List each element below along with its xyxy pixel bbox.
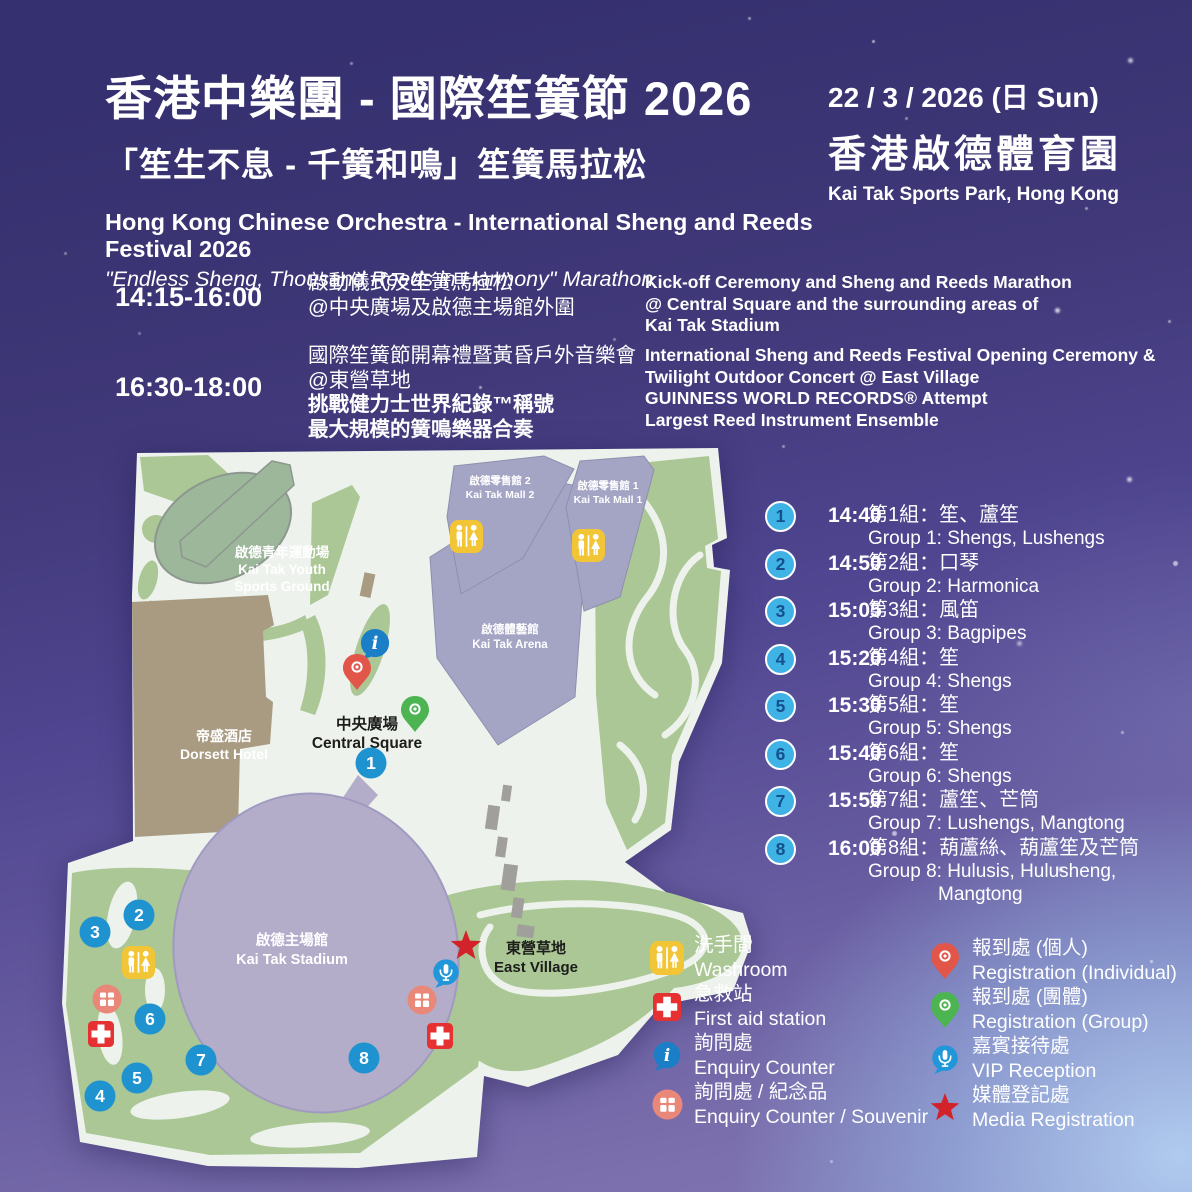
mall2-label-zh: 啟德零售館 2 — [469, 474, 530, 487]
legend-item-media-registration: 媒體登記處Media Registration — [926, 1083, 1192, 1132]
performance-schedule: 1 14:40 第1組：笙、蘆笙 Group 1: Shengs, Lushen… — [765, 501, 1190, 834]
mall1-label-en: Kai Tak Mall 1 — [574, 494, 643, 506]
souvenir-icon — [648, 1089, 686, 1120]
mall2-label-en: Kai Tak Mall 2 — [466, 489, 535, 501]
guinness-record-text: GUINNESS WORLD RECORDS® — [645, 388, 917, 408]
group-number-badge: 7 — [765, 786, 796, 817]
group-en: Group 1: Shengs, Lushengs — [868, 527, 1192, 551]
group-row: 5 15:30 第5組：笙 Group 5: Shengs — [765, 691, 1190, 739]
group-zh: 第6組：笙 — [868, 741, 1192, 765]
schedule-en-2-line1: International Sheng and Reeds Festival O… — [645, 345, 1156, 367]
svg-text:4: 4 — [95, 1086, 105, 1106]
schedule-en-2-line3: GUINNESS WORLD RECORDS® Attempt — [645, 388, 1156, 410]
group-en-line2: Mangtong — [938, 883, 1192, 907]
svg-text:3: 3 — [90, 922, 100, 942]
event-poster: 香港中樂團 - 國際笙簧節 2026 「笙生不息 - 千簧和鳴」笙簧馬拉松 Ho… — [0, 0, 1192, 1192]
mall1-label-zh: 啟德零售館 1 — [577, 479, 638, 492]
legend-item-first-aid: 急救站First aid station — [648, 982, 948, 1031]
group-number-badge: 2 — [765, 549, 796, 580]
legend-item-washroom: 洗手間Washroom — [648, 933, 948, 982]
legend-item-registration-group: 報到處 (團體)Registration (Group) — [926, 985, 1192, 1034]
legend-zh: 詢問處 / 紀念品 — [694, 1080, 928, 1105]
youth-ground-label-en2: Sports Ground — [234, 579, 329, 594]
legend-en: Washroom — [694, 958, 788, 983]
schedule-zh-2-line2: @東營草地 — [308, 369, 636, 394]
schedule-time-1: 14:15-16:00 — [115, 282, 262, 313]
legend-item-enquiry: 詢問處Enquiry Counter — [648, 1031, 948, 1080]
venue-zh: 香港啟德體育園 — [828, 123, 1188, 178]
legend-zh: 報到處 (團體) — [972, 985, 1149, 1010]
group-zh: 第3組：風笛 — [868, 598, 1192, 622]
group-row: 3 15:05 第3組：風笛 Group 3: Bagpipes — [765, 596, 1190, 644]
group-row: 1 14:40 第1組：笙、蘆笙 Group 1: Shengs, Lushen… — [765, 501, 1190, 549]
map-marker-5: 5 — [122, 1063, 153, 1094]
group-number-badge: 5 — [765, 691, 796, 722]
map-marker-3: 3 — [80, 917, 111, 948]
group-number-badge: 4 — [765, 644, 796, 675]
legend-zh: 洗手間 — [694, 933, 788, 958]
map-marker-7: 7 — [186, 1045, 217, 1076]
schedule-zh-1-line2: @中央廣場及啟德主場館外圍 — [308, 296, 575, 321]
dorsett-label-zh: 帝盛酒店 — [196, 728, 252, 744]
title-en: Hong Kong Chinese Orchestra - Internatio… — [105, 209, 845, 263]
group-row: 4 15:20 第4組：笙 Group 4: Shengs — [765, 644, 1190, 692]
schedule-en-2: International Sheng and Reeds Festival O… — [645, 345, 1156, 431]
group-number-badge: 8 — [765, 834, 796, 865]
schedule-en-1: Kick-off Ceremony and Sheng and Reeds Ma… — [645, 272, 1072, 337]
legend-en: Registration (Individual) — [972, 961, 1177, 986]
star-icon — [926, 1092, 964, 1124]
map-marker-2: 2 — [124, 900, 155, 931]
group-en: Group 8: Hulusis, Hulusheng, — [868, 860, 1192, 884]
venue-en: Kai Tak Sports Park, Hong Kong — [828, 184, 1188, 206]
souvenir-icon — [92, 984, 121, 1013]
schedule-en-2-line2: Twilight Outdoor Concert @ East Village — [645, 367, 1156, 389]
legend-en: Enquiry Counter / Souvenir — [694, 1105, 928, 1130]
group-zh: 第1組：笙、蘆笙 — [868, 503, 1192, 527]
schedule-zh-2-line1: 國際笙簧節開幕禮暨黃昏戶外音樂會 — [308, 344, 636, 369]
group-en: Group 6: Shengs — [868, 765, 1192, 789]
pin-red-icon — [926, 942, 964, 980]
legend-zh: 嘉賓接待處 — [972, 1034, 1096, 1059]
group-number-badge: 1 — [765, 501, 796, 532]
group-zh: 第8組：葫蘆絲、葫蘆笙及芒筒 — [868, 836, 1192, 860]
legend-en: First aid station — [694, 1007, 826, 1032]
legend-zh: 報到處 (個人) — [972, 936, 1177, 961]
header-title-block: 香港中樂團 - 國際笙簧節 2026 「笙生不息 - 千簧和鳴」笙簧馬拉松 Ho… — [105, 74, 845, 292]
schedule-en-2-line4: Largest Reed Instrument Ensemble — [645, 410, 1156, 432]
svg-text:5: 5 — [132, 1068, 142, 1088]
youth-ground-label-en1: Kai Tak Youth — [238, 562, 326, 577]
map-marker-4: 4 — [85, 1081, 116, 1112]
map-marker-6: 6 — [135, 1004, 166, 1035]
east-village-label-zh: 東營草地 — [506, 939, 566, 957]
group-en: Group 2: Harmonica — [868, 575, 1192, 599]
group-en: Group 3: Bagpipes — [868, 622, 1192, 646]
group-en: Group 5: Shengs — [868, 717, 1192, 741]
schedule-en-1-line2: @ Central Square and the surrounding are… — [645, 294, 1072, 316]
legend-en: Media Registration — [972, 1108, 1135, 1133]
schedule-time-2: 16:30-18:00 — [115, 372, 262, 403]
legend-zh: 媒體登記處 — [972, 1083, 1135, 1108]
group-zh: 第2組：口琴 — [868, 551, 1192, 575]
legend-registration: 報到處 (個人)Registration (Individual) 報到處 (團… — [926, 936, 1192, 1132]
youth-ground-label: 啟德青年運動場 — [235, 544, 330, 560]
svg-text:7: 7 — [196, 1050, 206, 1070]
washroom-icon — [122, 946, 155, 979]
event-date: 22 / 3 / 2026 (日 Sun) — [828, 76, 1188, 116]
washroom-icon — [450, 520, 483, 553]
legend-item-registration-individual: 報到處 (個人)Registration (Individual) — [926, 936, 1192, 985]
svg-text:2: 2 — [134, 905, 144, 925]
page-title: 香港中樂團 - 國際笙簧節 2026 — [105, 74, 845, 123]
legend-zh: 急救站 — [694, 982, 826, 1007]
legend-en: Enquiry Counter — [694, 1056, 835, 1081]
east-village-label-en: East Village — [494, 959, 578, 976]
dorsett-label-en: Dorsett Hotel — [180, 746, 268, 762]
arena-label-en: Kai Tak Arena — [472, 639, 548, 651]
map-marker-8: 8 — [349, 1043, 380, 1074]
first-aid-icon — [427, 1023, 453, 1049]
stadium-label-en: Kai Tak Stadium — [236, 952, 348, 968]
pin-green-icon — [926, 991, 964, 1029]
schedule-en-1-line1: Kick-off Ceremony and Sheng and Reeds Ma… — [645, 272, 1072, 294]
souvenir-icon — [407, 985, 436, 1014]
group-row: 6 15:40 第6組：笙 Group 6: Shengs — [765, 739, 1190, 787]
washroom-icon — [648, 941, 686, 975]
washroom-icon — [572, 529, 605, 562]
enquiry-icon — [648, 1040, 686, 1072]
mic-icon — [926, 1043, 964, 1075]
map-marker-1: 1 — [356, 748, 387, 779]
arena-label-zh: 啟德體藝館 — [481, 622, 539, 636]
legend-zh: 詢問處 — [694, 1031, 835, 1056]
group-zh: 第5組：笙 — [868, 693, 1192, 717]
group-number-badge: 6 — [765, 739, 796, 770]
svg-text:6: 6 — [145, 1009, 155, 1029]
schedule-zh-1: 啟動儀式及笙簧馬拉松 @中央廣場及啟德主場館外圍 — [308, 271, 575, 320]
first-aid-icon — [88, 1021, 114, 1047]
first-aid-icon — [648, 993, 686, 1021]
group-zh: 第7組：蘆笙、芒筒 — [868, 788, 1192, 812]
svg-text:1: 1 — [366, 753, 376, 773]
legend-facilities: 洗手間Washroom 急救站First aid station 詢問處Enqu… — [648, 933, 948, 1129]
subtitle-zh: 「笙生不息 - 千簧和鳴」笙簧馬拉松 — [105, 138, 845, 186]
group-en: Group 7: Lushengs, Mangtong — [868, 812, 1192, 836]
legend-en: VIP Reception — [972, 1059, 1096, 1084]
group-row: 2 14:50 第2組：口琴 Group 2: Harmonica — [765, 549, 1190, 597]
legend-en: Registration (Group) — [972, 1010, 1149, 1035]
group-zh: 第4組：笙 — [868, 646, 1192, 670]
schedule-zh-2-line4: 最大規模的簧鳴樂器合奏 — [308, 418, 636, 443]
svg-text:8: 8 — [359, 1048, 369, 1068]
schedule-zh-2: 國際笙簧節開幕禮暨黃昏戶外音樂會 @東營草地 挑戰健力士世界紀錄™稱號 最大規模… — [308, 344, 636, 442]
group-en: Group 4: Shengs — [868, 670, 1192, 694]
central-square-label-zh: 中央廣場 — [336, 714, 399, 733]
legend-item-vip-reception: 嘉賓接待處VIP Reception — [926, 1034, 1192, 1083]
schedule-en-1-line3: Kai Tak Stadium — [645, 315, 1072, 337]
attempt-text: Attempt — [917, 388, 987, 408]
stadium-label-zh: 啟德主場館 — [256, 931, 329, 949]
group-row: 7 15:50 第7組：蘆笙、芒筒 Group 7: Lushengs, Man… — [765, 786, 1190, 834]
group-number-badge: 3 — [765, 596, 796, 627]
schedule-zh-2-line3: 挑戰健力士世界紀錄™稱號 — [308, 393, 636, 418]
schedule-zh-1-line1: 啟動儀式及笙簧馬拉松 — [308, 271, 575, 296]
legend-item-souvenir: 詢問處 / 紀念品Enquiry Counter / Souvenir — [648, 1080, 948, 1129]
date-venue-block: 22 / 3 / 2026 (日 Sun) 香港啟德體育園 Kai Tak Sp… — [828, 76, 1188, 206]
